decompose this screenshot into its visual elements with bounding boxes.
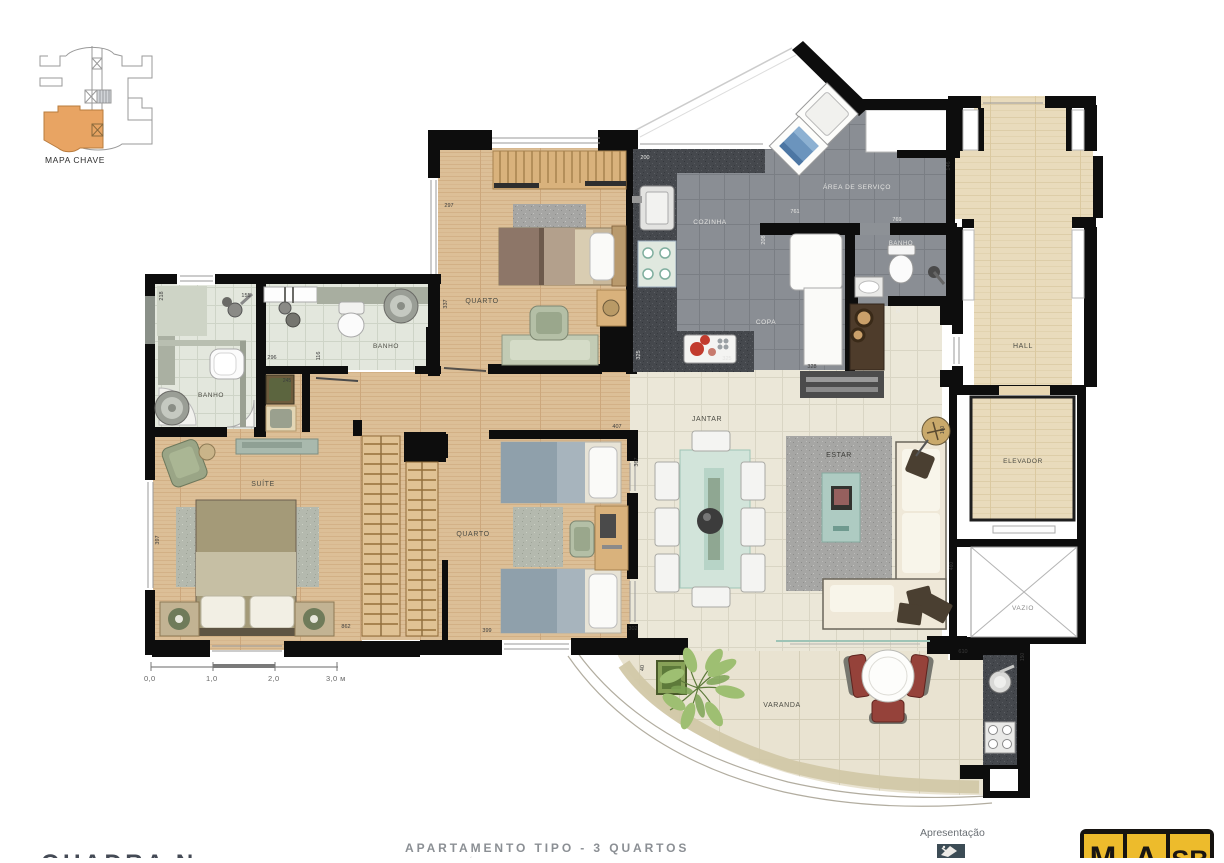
svg-text:116: 116 <box>316 352 322 361</box>
svg-text:155: 155 <box>241 293 250 299</box>
svg-text:862: 862 <box>341 624 350 630</box>
svg-text:BANHO: BANHO <box>889 241 913 247</box>
svg-text:218: 218 <box>159 291 165 300</box>
svg-text:160: 160 <box>940 426 946 435</box>
svg-text:296: 296 <box>267 355 276 361</box>
svg-text:SUÍTE: SUÍTE <box>251 479 275 488</box>
svg-text:200: 200 <box>640 155 649 161</box>
svg-text:90: 90 <box>896 307 902 313</box>
svg-text:1,0: 1,0 <box>206 674 218 683</box>
svg-text:150: 150 <box>1020 653 1026 662</box>
svg-text:VARANDA: VARANDA <box>763 702 801 709</box>
svg-text:302: 302 <box>628 626 637 632</box>
svg-text:460: 460 <box>949 562 955 571</box>
svg-text:QUARTO: QUARTO <box>456 531 489 538</box>
svg-text:610: 610 <box>958 649 967 655</box>
svg-text:328: 328 <box>807 364 816 370</box>
svg-text:M: M <box>1090 840 1117 858</box>
svg-text:407: 407 <box>612 424 621 430</box>
svg-text:QUARTO: QUARTO <box>465 298 498 305</box>
svg-text:208: 208 <box>761 235 767 244</box>
svg-text:BANHO: BANHO <box>373 343 399 350</box>
svg-text:ESTAR: ESTAR <box>826 452 852 459</box>
svg-text:40: 40 <box>640 665 646 671</box>
svg-text:325: 325 <box>636 350 642 359</box>
svg-text:146: 146 <box>946 161 952 170</box>
svg-text:HALL: HALL <box>1013 343 1033 350</box>
svg-text:BANHO: BANHO <box>198 392 224 399</box>
svg-text:VAZIO: VAZIO <box>1012 605 1034 612</box>
svg-text:Apresentação: Apresentação <box>920 827 985 839</box>
svg-text:COPA: COPA <box>756 319 776 326</box>
svg-text:297: 297 <box>444 203 453 209</box>
svg-text:761: 761 <box>790 209 799 215</box>
svg-text:3,0 м: 3,0 м <box>326 674 346 683</box>
svg-text:ELEVADOR: ELEVADOR <box>1003 458 1043 465</box>
svg-text:769: 769 <box>892 217 901 223</box>
svg-text:QUADRA N: QUADRA N <box>41 850 197 858</box>
svg-text:337: 337 <box>443 299 449 308</box>
svg-text:397: 397 <box>155 535 161 544</box>
svg-text:325: 325 <box>722 356 731 362</box>
svg-text:A: A <box>1134 840 1157 858</box>
svg-text:0,0: 0,0 <box>144 674 156 683</box>
svg-text:MAPA CHAVE: MAPA CHAVE <box>45 155 105 165</box>
svg-text:ÁREA DE SERVIÇO: ÁREA DE SERVIÇO <box>823 182 891 191</box>
svg-text:COZINHA: COZINHA <box>693 219 727 226</box>
svg-text:APARTAMENTO TIPO - 3 QUARTOS: APARTAMENTO TIPO - 3 QUARTOS <box>405 841 689 855</box>
svg-text:367: 367 <box>634 457 640 466</box>
svg-text:399: 399 <box>482 628 491 634</box>
svg-text:245: 245 <box>283 378 292 384</box>
svg-text:SB: SB <box>1171 845 1209 858</box>
svg-text:JANTAR: JANTAR <box>692 416 722 423</box>
svg-text:2,0: 2,0 <box>268 674 280 683</box>
